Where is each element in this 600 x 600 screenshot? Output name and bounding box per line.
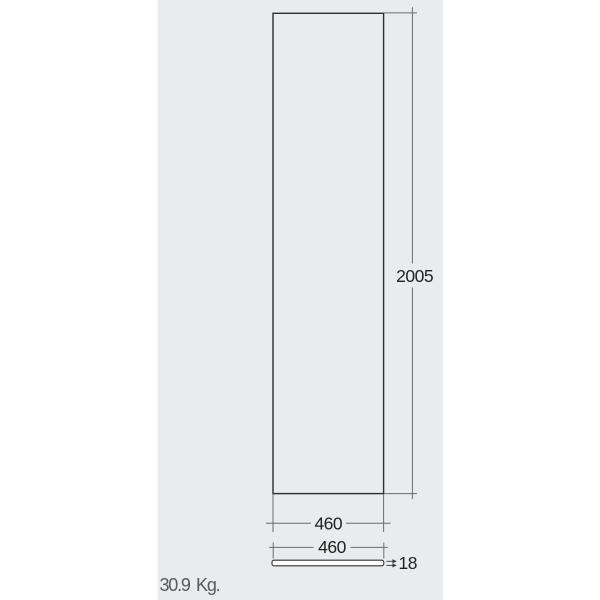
svg-text:460: 460 [314, 514, 342, 534]
svg-text:18: 18 [399, 553, 417, 573]
svg-text:460: 460 [318, 537, 346, 557]
svg-text:30.9 Kg.: 30.9 Kg. [160, 575, 220, 595]
svg-text:2005: 2005 [396, 266, 433, 286]
